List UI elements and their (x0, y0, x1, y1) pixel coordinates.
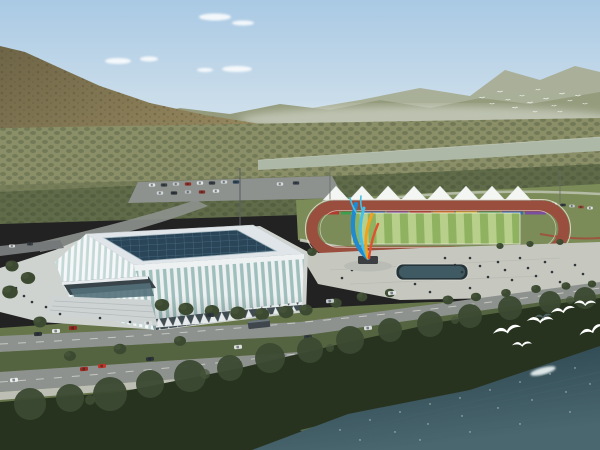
scene-canvas (0, 0, 600, 450)
reflecting-pool (396, 264, 468, 280)
rendering-image (0, 0, 600, 450)
